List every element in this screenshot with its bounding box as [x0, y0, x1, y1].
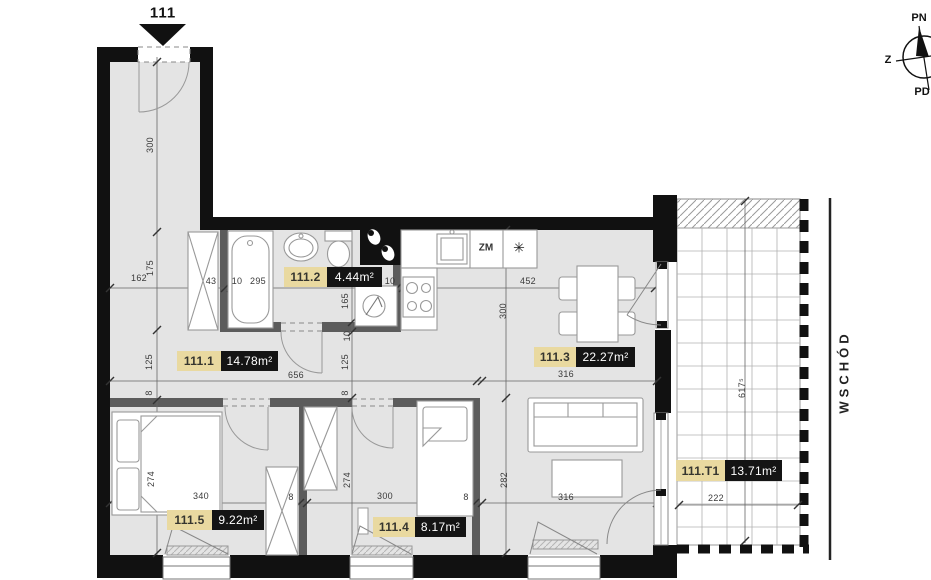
washbasin: [284, 233, 318, 261]
compass-label-south: PD: [914, 86, 929, 98]
room-id-living: 111.3: [534, 347, 576, 367]
windows: [163, 557, 600, 579]
toilet: [325, 231, 352, 267]
dimension-label: 10: [232, 276, 243, 286]
compass-icon: [896, 26, 931, 90]
dimension-label: 274: [146, 471, 156, 487]
dimension-label: 300: [145, 137, 155, 153]
dimension-label: 165: [340, 293, 350, 309]
dimension-label: 8: [144, 390, 154, 395]
dimension-label: 10: [342, 331, 352, 342]
dimension-label: 340: [193, 491, 209, 501]
dimension-label: 316: [558, 492, 574, 502]
dimension-label: 316: [558, 369, 574, 379]
dimension-label: 8: [463, 492, 468, 502]
dimension-label: 8: [340, 390, 350, 395]
dimension-label: 295: [250, 276, 266, 286]
sofa: [528, 398, 643, 452]
dimension-label: 282: [499, 472, 509, 488]
dining-table: [577, 266, 618, 342]
unit-number: 111: [150, 5, 176, 22]
cooktop: [403, 277, 434, 317]
compass-label-west: Z: [885, 54, 892, 66]
dimension-label: 617⁵: [737, 378, 747, 398]
kitchen-sink: [437, 230, 467, 264]
room-area-living: 22.27m²: [576, 347, 635, 367]
room-area-hall: 14.78m²: [221, 351, 278, 371]
room-area-bedroom2: 8.17m²: [415, 517, 466, 537]
room-id-bedroom1: 111.5: [167, 510, 212, 530]
dimension-label: 125: [144, 354, 154, 370]
room-area-bathroom: 4.44m²: [327, 267, 382, 287]
room-area-bedroom1: 9.22m²: [212, 510, 264, 530]
dimension-label: 43: [206, 276, 217, 286]
east-orientation-label: WSCHÓD: [837, 330, 852, 413]
room-id-hall: 111.1: [177, 351, 221, 371]
room-id-bathroom: 111.2: [284, 267, 327, 287]
entrance-arrow-icon: [139, 24, 186, 46]
dishwasher-label: ZM: [479, 243, 493, 254]
fridge-symbol: ✳: [513, 240, 525, 257]
washing-machine: [355, 286, 397, 326]
dimension-label: 656: [288, 370, 304, 380]
dimension-label: 222: [708, 493, 724, 503]
compass-label-north: PN: [911, 12, 926, 24]
terrace: [677, 199, 809, 553]
dimension-label: 125: [340, 354, 350, 370]
bedroom1-wardrobe: [266, 467, 298, 555]
floor-plan: 111 111.2 4.44m² 111.1 14.78m² 111.3 22.…: [0, 0, 931, 580]
dimension-label: 300: [377, 491, 393, 501]
dimension-label: 10: [385, 276, 396, 286]
room-area-terrace: 13.71m²: [725, 460, 782, 481]
dimension-label: 274: [342, 472, 352, 488]
bedroom2-wardrobe: [304, 407, 337, 490]
dimension-label: 452: [520, 276, 536, 286]
dimension-label: 8: [288, 492, 293, 502]
room-id-bedroom2: 111.4: [373, 517, 415, 537]
dimension-label: 162: [131, 273, 147, 283]
room-id-terrace: 111.T1: [676, 460, 725, 481]
dimension-label: 300: [498, 303, 508, 319]
